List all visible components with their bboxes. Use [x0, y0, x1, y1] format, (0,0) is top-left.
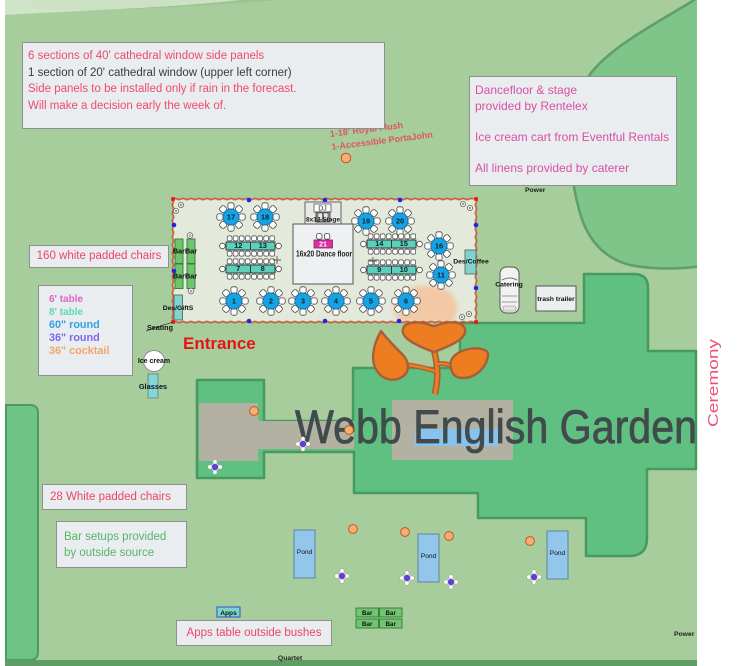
svg-text:Bar: Bar — [386, 621, 397, 628]
svg-text:Pond: Pond — [421, 553, 437, 560]
svg-text:Des/GiftS: Des/GiftS — [163, 305, 194, 312]
svg-text:14: 14 — [375, 239, 384, 248]
svg-text:Entrance: Entrance — [183, 334, 256, 353]
svg-text:2: 2 — [269, 297, 273, 306]
svg-text:15: 15 — [400, 239, 408, 248]
svg-text:Apps: Apps — [220, 610, 237, 617]
svg-text:7: 7 — [236, 264, 240, 273]
svg-text:20: 20 — [396, 217, 404, 226]
svg-text:11: 11 — [437, 271, 445, 280]
svg-text:Bar: Bar — [362, 610, 373, 617]
svg-text:1: 1 — [232, 297, 236, 306]
svg-text:BarBar: BarBar — [173, 272, 197, 281]
svg-text:Catering: Catering — [495, 282, 523, 289]
svg-text:Ceremony: Ceremony — [706, 338, 722, 427]
svg-text:18: 18 — [261, 213, 269, 222]
svg-text:8x12 Stage: 8x12 Stage — [306, 217, 340, 224]
svg-text:19: 19 — [362, 217, 370, 226]
svg-text:16: 16 — [435, 242, 443, 251]
svg-text:Power: Power — [674, 631, 695, 638]
svg-text:Quartet: Quartet — [278, 655, 303, 662]
svg-text:17: 17 — [227, 213, 235, 222]
svg-text:trash trailer: trash trailer — [537, 296, 575, 303]
svg-text:Bar: Bar — [386, 610, 397, 617]
svg-text:Bar: Bar — [362, 621, 373, 628]
svg-text:Webb English Garden: Webb English Garden — [295, 401, 697, 454]
svg-text:3: 3 — [301, 297, 305, 306]
svg-text:5: 5 — [369, 297, 373, 306]
svg-text:Ice cream: Ice cream — [138, 358, 170, 365]
svg-text:Seating: Seating — [147, 323, 173, 332]
svg-text:Power: Power — [525, 187, 546, 194]
svg-text:10: 10 — [400, 265, 408, 274]
svg-text:8: 8 — [261, 264, 265, 273]
svg-text:12: 12 — [234, 241, 242, 250]
svg-text:9: 9 — [377, 265, 381, 274]
svg-text:13: 13 — [259, 241, 267, 250]
svg-text:21: 21 — [319, 241, 327, 248]
svg-text:BarBar: BarBar — [173, 247, 197, 256]
svg-text:Glasses: Glasses — [139, 382, 167, 391]
svg-text:Pond: Pond — [297, 549, 313, 556]
svg-text:Pond: Pond — [550, 550, 566, 557]
svg-text:6: 6 — [404, 297, 408, 306]
svg-text:Des/Coffee: Des/Coffee — [453, 259, 489, 266]
svg-text:16x20 Dance floor: 16x20 Dance floor — [296, 249, 353, 259]
svg-text:DJ: DJ — [318, 206, 327, 213]
